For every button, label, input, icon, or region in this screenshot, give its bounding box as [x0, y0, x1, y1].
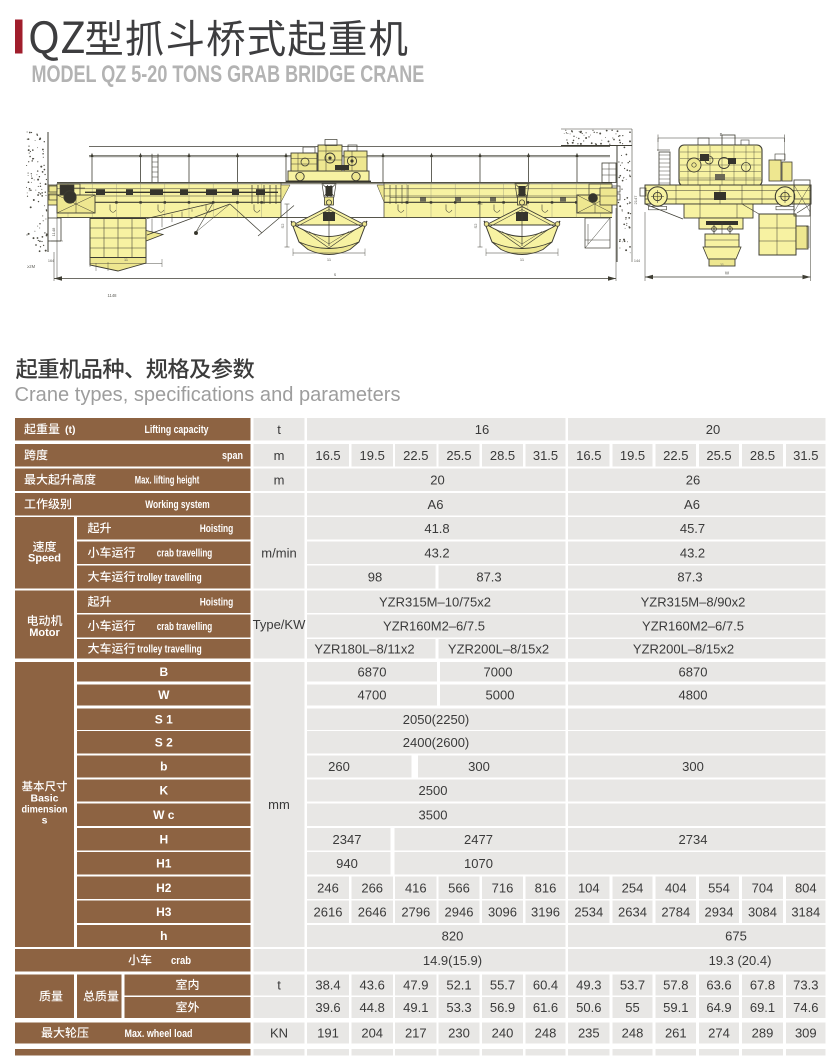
- svg-text:1148: 1148: [51, 227, 56, 236]
- svg-text:22.5: 22.5: [403, 448, 428, 463]
- svg-text:crab travelling: crab travelling: [157, 548, 213, 560]
- svg-text:716: 716: [492, 880, 514, 895]
- svg-text:204: 204: [361, 1026, 383, 1041]
- svg-text:300: 300: [468, 759, 490, 774]
- svg-text:t: t: [277, 978, 281, 993]
- svg-text:191: 191: [317, 1026, 339, 1041]
- svg-text:67.8: 67.8: [750, 978, 775, 993]
- svg-text:404: 404: [665, 880, 687, 895]
- svg-text:56.9: 56.9: [490, 1000, 515, 1015]
- svg-text:19.5: 19.5: [360, 448, 385, 463]
- svg-text:87.3: 87.3: [677, 570, 702, 585]
- svg-text:59.1: 59.1: [663, 1000, 688, 1015]
- svg-text:230: 230: [448, 1026, 470, 1041]
- svg-text:16.5: 16.5: [315, 448, 340, 463]
- svg-text:235: 235: [578, 1026, 600, 1041]
- svg-text:940: 940: [336, 856, 358, 871]
- svg-text:289: 289: [752, 1026, 774, 1041]
- svg-text:(t): (t): [65, 424, 76, 436]
- svg-text:H3: H3: [156, 905, 172, 919]
- svg-text:25.5: 25.5: [706, 448, 731, 463]
- svg-text:254: 254: [622, 880, 644, 895]
- svg-text:4800: 4800: [679, 688, 708, 703]
- svg-text:11: 11: [520, 257, 525, 262]
- svg-text:Crane types, specifications an: Crane types, specifications and paramete…: [15, 383, 401, 406]
- svg-text:m/min: m/min: [261, 545, 296, 560]
- svg-text:31.5: 31.5: [533, 448, 558, 463]
- svg-text:H: H: [159, 833, 168, 847]
- svg-text:crab travelling: crab travelling: [157, 621, 213, 633]
- svg-text:2784: 2784: [661, 904, 690, 919]
- svg-text:2616: 2616: [314, 904, 343, 919]
- svg-text:H1: H1: [156, 857, 172, 871]
- svg-text:S 2: S 2: [155, 736, 173, 750]
- svg-text:4700: 4700: [358, 688, 387, 703]
- svg-text:Type/KW: Type/KW: [253, 617, 306, 632]
- svg-text:804: 804: [795, 880, 817, 895]
- svg-text:41.8: 41.8: [424, 521, 449, 536]
- svg-text:2147: 2147: [633, 195, 638, 205]
- svg-text:43.6: 43.6: [360, 978, 385, 993]
- svg-text:49.1: 49.1: [403, 1000, 428, 1015]
- svg-text:50.6: 50.6: [576, 1000, 601, 1015]
- svg-text:566: 566: [448, 880, 470, 895]
- svg-text:3196: 3196: [531, 904, 560, 919]
- svg-text:28.5: 28.5: [750, 448, 775, 463]
- svg-text:69.1: 69.1: [750, 1000, 775, 1015]
- svg-text:W: W: [725, 271, 730, 276]
- svg-text:YZR160M2–6/7.5: YZR160M2–6/7.5: [642, 619, 744, 634]
- svg-text:164: 164: [48, 259, 54, 263]
- svg-text:309: 309: [795, 1026, 817, 1041]
- svg-text:A6: A6: [684, 497, 700, 512]
- svg-text:2734: 2734: [679, 832, 708, 847]
- svg-text:7000: 7000: [484, 664, 513, 679]
- svg-text:61.6: 61.6: [533, 1000, 558, 1015]
- svg-text:704: 704: [752, 880, 774, 895]
- svg-text:2534: 2534: [574, 904, 603, 919]
- svg-text:2347: 2347: [333, 832, 362, 847]
- svg-text:Hoisting: Hoisting: [200, 597, 234, 609]
- svg-text:16.5: 16.5: [576, 448, 601, 463]
- svg-text:YZR315M–10/75x2: YZR315M–10/75x2: [379, 594, 491, 609]
- svg-text:266: 266: [361, 880, 383, 895]
- svg-text:2500: 2500: [419, 783, 448, 798]
- svg-text:YZR315M–8/90x2: YZR315M–8/90x2: [641, 594, 746, 609]
- svg-text:Motor: Motor: [29, 627, 60, 639]
- svg-text:6870: 6870: [358, 664, 387, 679]
- svg-text:19.3 (20.4): 19.3 (20.4): [709, 953, 772, 968]
- svg-text:74.6: 74.6: [793, 1000, 818, 1015]
- svg-text:1070: 1070: [464, 856, 493, 871]
- svg-text:h: h: [160, 929, 167, 943]
- svg-text:16: 16: [475, 422, 489, 437]
- svg-text:31.5: 31.5: [793, 448, 818, 463]
- svg-text:2646: 2646: [358, 904, 387, 919]
- svg-text:crab: crab: [171, 955, 191, 967]
- svg-text:3500: 3500: [419, 807, 448, 822]
- svg-text:S2: S2: [473, 223, 478, 229]
- svg-text:57.8: 57.8: [663, 978, 688, 993]
- svg-text:Max. wheel load: Max. wheel load: [125, 1028, 193, 1040]
- svg-text:43.2: 43.2: [680, 545, 705, 560]
- svg-text:YZR180L–8/11x2: YZR180L–8/11x2: [314, 641, 414, 656]
- svg-text:73.3: 73.3: [793, 978, 818, 993]
- svg-text:t: t: [277, 422, 281, 437]
- svg-text:3184: 3184: [791, 904, 820, 919]
- svg-text:274: 274: [708, 1026, 730, 1041]
- svg-text:≥2M: ≥2M: [27, 264, 36, 269]
- svg-text:s: s: [42, 815, 48, 827]
- svg-text:S 1: S 1: [155, 713, 173, 727]
- svg-text:49.3: 49.3: [576, 978, 601, 993]
- svg-text:19.5: 19.5: [620, 448, 645, 463]
- svg-text:6870: 6870: [679, 664, 708, 679]
- svg-text:53.7: 53.7: [620, 978, 645, 993]
- svg-text:28.5: 28.5: [490, 448, 515, 463]
- svg-text:60.4: 60.4: [533, 978, 558, 993]
- svg-text:b: b: [160, 760, 167, 774]
- svg-text:Speed: Speed: [28, 553, 61, 565]
- svg-text:246: 246: [317, 880, 339, 895]
- svg-text:261: 261: [665, 1026, 687, 1041]
- svg-text:248: 248: [535, 1026, 557, 1041]
- svg-text:104: 104: [578, 880, 600, 895]
- svg-text:YZR160M2–6/7.5: YZR160M2–6/7.5: [383, 619, 485, 634]
- svg-text:B: B: [159, 665, 168, 679]
- svg-text:820: 820: [442, 929, 464, 944]
- svg-text:S2: S2: [280, 223, 285, 229]
- svg-text:A6: A6: [428, 497, 444, 512]
- svg-text:44.8: 44.8: [360, 1000, 385, 1015]
- svg-text:22.5: 22.5: [663, 448, 688, 463]
- svg-text:2634: 2634: [618, 904, 647, 919]
- svg-text:Working system: Working system: [145, 499, 210, 511]
- svg-text:2400(2600): 2400(2600): [403, 735, 470, 750]
- svg-text:248: 248: [622, 1026, 644, 1041]
- svg-text:trolley travelling: trolley travelling: [137, 572, 202, 584]
- svg-text:240: 240: [492, 1026, 514, 1041]
- svg-text:55.7: 55.7: [490, 978, 515, 993]
- svg-text:YZR200L–8/15x2: YZR200L–8/15x2: [633, 641, 734, 656]
- svg-text:2796: 2796: [401, 904, 430, 919]
- svg-text:m: m: [274, 448, 285, 463]
- svg-text:64.9: 64.9: [706, 1000, 731, 1015]
- svg-text:Lifting capacity: Lifting capacity: [145, 424, 210, 436]
- svg-text:3096: 3096: [488, 904, 517, 919]
- svg-text:38.4: 38.4: [315, 978, 340, 993]
- svg-text:mm: mm: [268, 797, 290, 812]
- svg-text:Max. lifting height: Max. lifting height: [135, 475, 200, 487]
- svg-text:14.9(15.9): 14.9(15.9): [423, 953, 482, 968]
- svg-text:2050(2250): 2050(2250): [403, 712, 470, 727]
- svg-text:H2: H2: [156, 881, 172, 895]
- svg-text:63.6: 63.6: [706, 978, 731, 993]
- svg-text:MODEL QZ 5-20 TONS GRAB BRIDGE: MODEL QZ 5-20 TONS GRAB BRIDGE CRANE: [32, 62, 425, 88]
- svg-text:52.1: 52.1: [446, 978, 471, 993]
- svg-text:5000: 5000: [486, 688, 515, 703]
- svg-text:45.7: 45.7: [680, 521, 705, 536]
- svg-text:m: m: [274, 472, 285, 487]
- svg-text:2946: 2946: [445, 904, 474, 919]
- svg-text:1148: 1148: [107, 293, 117, 298]
- svg-text:trolley travelling: trolley travelling: [137, 644, 202, 656]
- svg-text:W c: W c: [153, 808, 175, 822]
- svg-text:s: s: [334, 272, 337, 277]
- svg-text:816: 816: [535, 880, 557, 895]
- svg-text:43.2: 43.2: [424, 545, 449, 560]
- svg-text:53.3: 53.3: [446, 1000, 471, 1015]
- svg-text:2934: 2934: [705, 904, 734, 919]
- svg-text:87.3: 87.3: [476, 570, 501, 585]
- svg-text:KN: KN: [270, 1026, 288, 1041]
- svg-text:span: span: [222, 450, 243, 462]
- svg-text:25.5: 25.5: [446, 448, 471, 463]
- svg-text:20: 20: [430, 472, 444, 487]
- svg-text:2477: 2477: [464, 832, 493, 847]
- svg-text:98: 98: [368, 570, 382, 585]
- svg-text:39.6: 39.6: [315, 1000, 340, 1015]
- svg-text:20: 20: [706, 422, 720, 437]
- svg-text:55: 55: [625, 1000, 639, 1015]
- svg-text:3084: 3084: [748, 904, 777, 919]
- svg-text:11: 11: [720, 263, 724, 267]
- svg-text:Hoisting: Hoisting: [200, 523, 234, 535]
- svg-text:260: 260: [328, 759, 350, 774]
- svg-text:416: 416: [405, 880, 427, 895]
- svg-text:144: 144: [634, 259, 640, 263]
- svg-text:11: 11: [124, 258, 128, 262]
- svg-text:217: 217: [405, 1026, 427, 1041]
- svg-text:26: 26: [686, 472, 700, 487]
- svg-text:W: W: [158, 688, 170, 702]
- svg-text:11: 11: [327, 257, 332, 262]
- svg-text:675: 675: [725, 929, 747, 944]
- svg-text:554: 554: [708, 880, 730, 895]
- svg-text:K: K: [159, 784, 168, 798]
- svg-text:47.9: 47.9: [403, 978, 428, 993]
- svg-text:300: 300: [682, 759, 704, 774]
- svg-text:YZR200L–8/15x2: YZR200L–8/15x2: [448, 641, 549, 656]
